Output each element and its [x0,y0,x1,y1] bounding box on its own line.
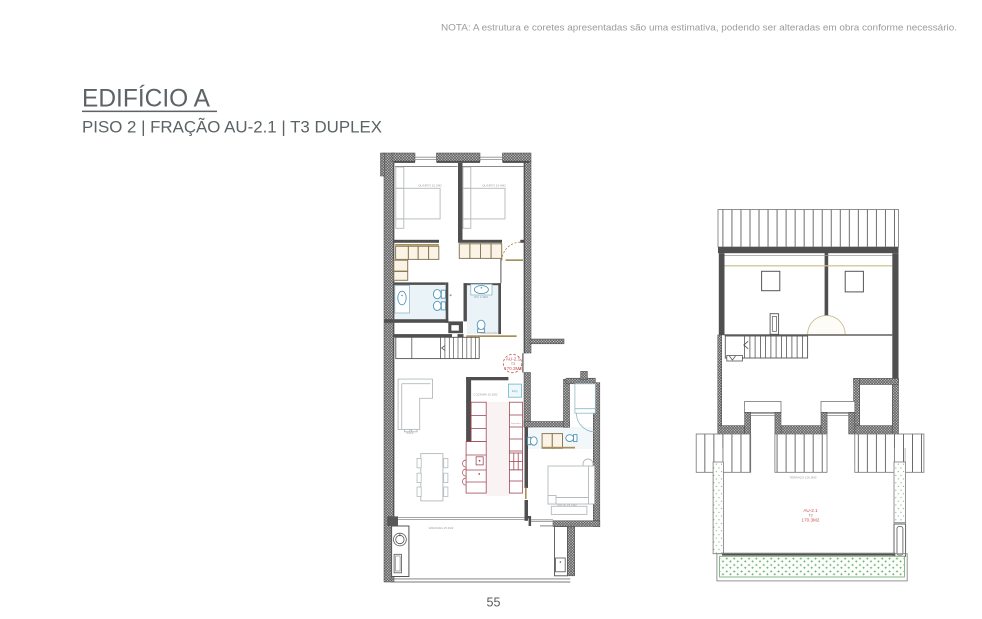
svg-text:SUITE 15.1M2: SUITE 15.1M2 [557,503,577,507]
svg-text:170.3M2: 170.3M2 [504,366,522,371]
svg-text:QUARTO 15.2M2: QUARTO 15.2M2 [418,184,442,188]
svg-text:AU-2.1: AU-2.1 [506,356,521,361]
svg-text:PISO 2 | FRAÇÃO AU-2.1 | T3 DU: PISO 2 | FRAÇÃO AU-2.1 | T3 DUPLEX [82,118,382,137]
svg-text:TERRAÇO 105.9M2: TERRAÇO 105.9M2 [789,475,817,479]
svg-text:QUARTO 15.4M2: QUARTO 15.4M2 [482,184,506,188]
svg-text:SOFÁ: SOFÁ [406,431,413,435]
svg-text:WC 2.3M2: WC 2.3M2 [474,295,489,299]
svg-text:EDIFÍCIO A: EDIFÍCIO A [82,84,210,113]
svg-text:Frigorífico: Frigorífico [511,422,522,425]
svg-text:NOTA: A estrutura e coretes ap: NOTA: A estrutura e coretes apresentadas… [441,23,957,33]
svg-text:55: 55 [487,596,501,610]
svg-text:170.3M2: 170.3M2 [802,517,820,522]
svg-text:COZINHA 15.2M2: COZINHA 15.2M2 [473,392,498,396]
svg-text:AU-2.1: AU-2.1 [803,508,818,513]
svg-text:ESQ.: ESQ. [512,389,518,393]
svg-text:VARANDA 15.1M2: VARANDA 15.1M2 [429,526,454,530]
